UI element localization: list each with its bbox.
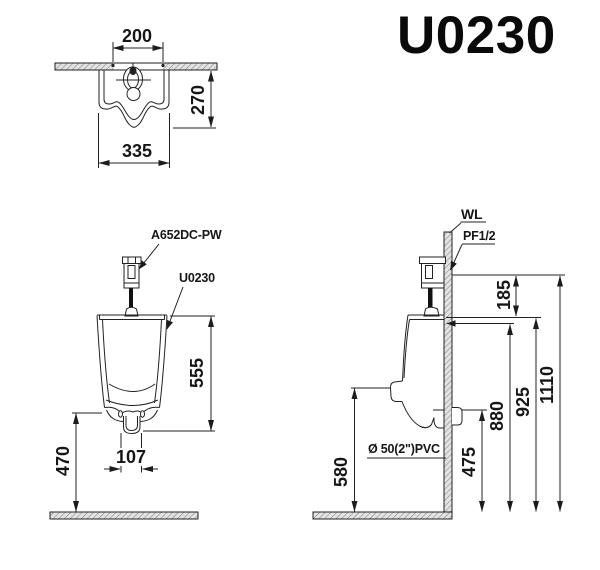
dim-text-270: 270 <box>189 84 207 116</box>
floor-hatch-front-view <box>50 512 198 519</box>
dim-text-1110: 1110 <box>538 365 556 405</box>
drain-plan <box>127 88 140 101</box>
dim-text-185: 185 <box>495 279 513 311</box>
label-valve-model: A652DC-PW <box>151 229 221 242</box>
page-title: U0230 <box>397 9 556 62</box>
dim-text-880: 880 <box>488 400 506 432</box>
dim-text-107: 107 <box>115 448 147 466</box>
drain-spud-side <box>452 408 462 426</box>
dim-text-200: 200 <box>121 27 153 45</box>
dim-text-580: 580 <box>332 456 350 488</box>
floor-hatch-side-view <box>313 512 452 519</box>
leader-model-label <box>167 287 183 329</box>
label-wall-line: WL <box>461 207 482 221</box>
label-urinal-model: U0230 <box>179 272 215 285</box>
flush-valve-side <box>420 257 446 316</box>
dim-text-925: 925 <box>514 386 532 418</box>
label-drain-pipe: Ø 50(2")PVC <box>368 443 440 456</box>
technical-drawing-canvas: U0230 200 270 335 A652DC-PW U0230 555 10… <box>0 0 600 570</box>
flush-valve-front <box>123 257 142 316</box>
leader-valve-label <box>139 244 159 269</box>
dim-text-475: 475 <box>460 446 478 478</box>
leader-wall-line <box>450 223 462 233</box>
dim-text-335: 335 <box>121 142 153 160</box>
wall-hatch-side-view <box>444 232 452 519</box>
dim-text-555: 555 <box>188 357 206 389</box>
dim-text-470: 470 <box>54 445 72 477</box>
urinal-body-front <box>97 315 167 434</box>
flush-pipe-front <box>129 288 133 308</box>
label-supply-fitting: PF1/2 <box>463 230 495 243</box>
flush-pipe-side <box>428 288 433 308</box>
